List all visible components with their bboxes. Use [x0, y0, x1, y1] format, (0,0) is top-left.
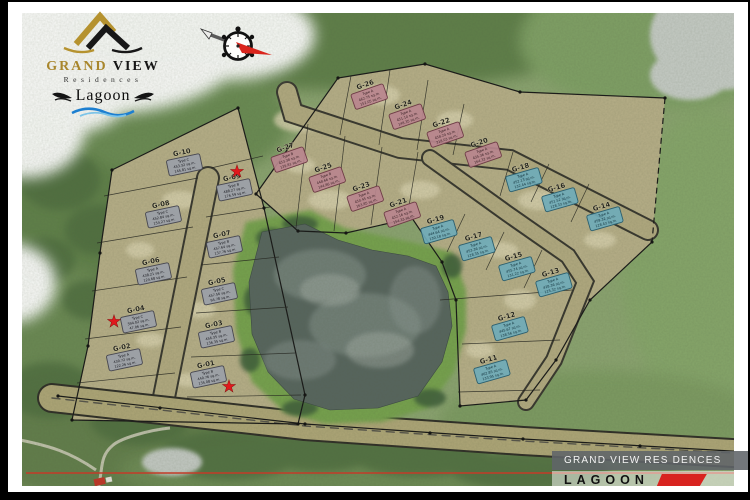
brand-name: GRAND VIEW	[24, 59, 182, 74]
red-trapezoid-icon	[657, 474, 707, 486]
star-marker: ★	[229, 162, 244, 182]
brand-view: VIEW	[113, 59, 160, 74]
banner-subtitle-row: LAGOON	[552, 471, 748, 489]
logo-monogram-icon	[43, 8, 163, 54]
wave-icon	[68, 105, 138, 119]
star-marker: ★	[106, 312, 121, 332]
star-marker: ★	[221, 377, 236, 397]
brand-grand: GRAND	[46, 59, 107, 74]
banner-title: GRAND VIEW RES DENCES	[552, 451, 748, 470]
brand-lagoon: Lagoon	[76, 87, 131, 105]
grand-view-logo: GRAND VIEW Residences Lagoon	[24, 8, 182, 124]
brand-lagoon-row: Lagoon	[24, 87, 182, 105]
banner-subtitle: LAGOON	[564, 473, 649, 487]
brand-residences: Residences	[24, 75, 182, 84]
site-plan-poster: G-10Type C453.32 sq.m.145.81 sq.m.G-09Ty…	[0, 0, 750, 500]
wing-right-icon	[133, 88, 155, 104]
footer-banner: GRAND VIEW RES DENCES LAGOON	[552, 451, 748, 489]
wing-left-icon	[51, 88, 73, 104]
